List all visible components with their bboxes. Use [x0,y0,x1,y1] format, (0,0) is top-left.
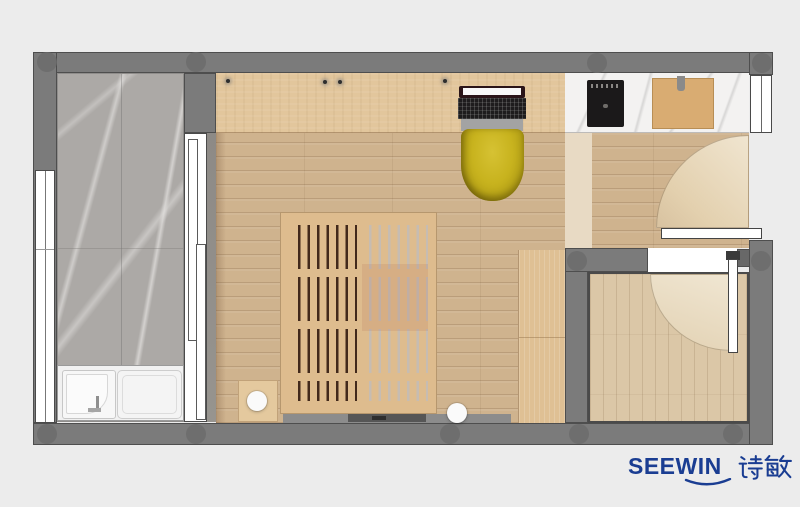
column-dot [752,53,772,73]
round-stool-left [247,391,267,411]
bed-base-handle [372,416,386,420]
wall-bottom [33,423,773,445]
bathroom-wall-left [565,248,588,423]
desk-knob [226,79,230,83]
cooktop [587,80,624,127]
column-dot [587,53,607,73]
shower-tray [117,370,182,419]
column-dot [567,251,587,271]
cutting-board-handle [677,76,685,91]
column-dot [723,424,743,444]
entry-door-leaf [661,228,762,239]
column-dot [440,424,460,444]
brand-logo: SEEWIN [628,449,800,499]
logo-swoosh [684,478,732,488]
sliding-panel-2 [196,244,206,420]
desk-chair [461,129,524,201]
bed-slats-right [362,225,428,401]
hallway-threshold [565,133,592,248]
bathroom-door-leaf [728,259,738,353]
entry-side-window [750,75,772,133]
divider-edge-shadow [207,133,216,422]
laptop-screen [459,86,525,98]
divider-pillar [184,73,216,133]
logo-cjk [738,455,792,482]
round-stool-right [447,403,467,423]
desk-knob [338,80,342,84]
left-window [35,170,55,423]
column-dot [186,52,206,72]
bed-frame [280,212,437,414]
floor-plan-canvas: SEEWIN [0,0,800,507]
faucet-spout [88,408,101,412]
bed-slats-left [291,225,357,401]
desk-knob [443,79,447,83]
column-dot [751,251,771,271]
bed-base-rail [348,414,426,422]
bathroom-door-opening [648,248,737,272]
column-dot [186,424,206,444]
desk-knob [323,80,327,84]
column-dot [569,424,589,444]
bathtub-unit [57,365,184,421]
column-dot [37,424,57,444]
wardrobe [518,250,565,423]
balcony-sliding-door [184,133,207,422]
floor-shadow [216,133,226,423]
laptop-keyboard [458,98,526,119]
column-dot [37,52,57,72]
logo-wordmark: SEEWIN [628,453,722,480]
wall-top [33,52,773,73]
